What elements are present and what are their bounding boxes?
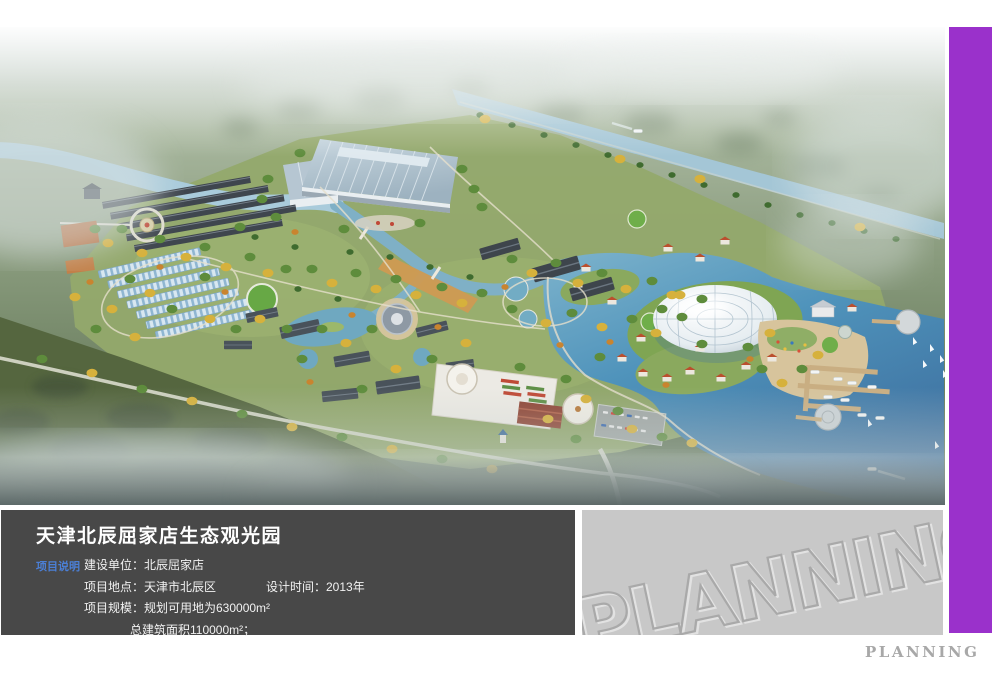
aerial-rendering-svg xyxy=(0,27,945,505)
detail-row-floor-area: 总建筑面积110000m²； xyxy=(84,620,270,642)
detail-row-owner: 建设单位：北辰屈家店 xyxy=(84,555,270,577)
watermark-svg: PLANNING PLANNING xyxy=(582,510,943,635)
watermark-text: PLANNING xyxy=(582,510,943,635)
detail-row-location: 项目地点：天津市北辰区 设计时间：2013年 xyxy=(84,577,270,599)
accent-bar xyxy=(949,27,992,633)
planning-wordmark: PLANNING xyxy=(865,643,979,661)
section-label: 项目说明 xyxy=(36,558,84,574)
project-details: 建设单位：北辰屈家店 项目地点：天津市北辰区 设计时间：2013年 项目规模：规… xyxy=(84,555,270,641)
detail-row-scale: 项目规模：规划可用地为630000m² xyxy=(84,598,270,620)
presentation-board: 天津北辰屈家店生态观光园 项目说明 建设单位：北辰屈家店 项目地点：天津市北辰区… xyxy=(0,0,1000,678)
aerial-rendering xyxy=(0,27,945,505)
watermark-panel: PLANNING PLANNING xyxy=(582,510,943,635)
project-title: 天津北辰屈家店生态观光园 xyxy=(1,510,575,548)
project-info-panel: 天津北辰屈家店生态观光园 项目说明 建设单位：北辰屈家店 项目地点：天津市北辰区… xyxy=(1,510,575,635)
